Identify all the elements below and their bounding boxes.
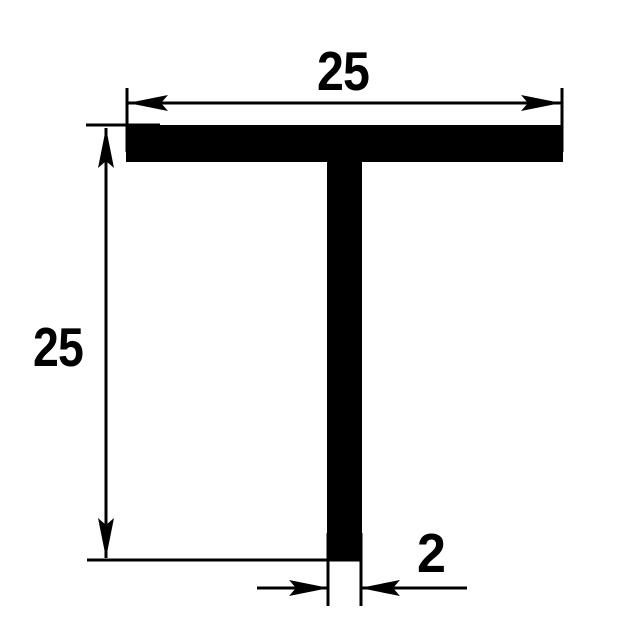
width-dimension-label: 25 xyxy=(317,40,369,102)
height-dimension-label: 25 xyxy=(33,316,83,378)
t-profile-shape xyxy=(126,125,563,561)
thickness-dimension-label: 2 xyxy=(417,522,445,584)
height-dimension: 25 xyxy=(33,125,362,560)
thickness-dimension: 2 xyxy=(257,522,467,606)
stem-shape xyxy=(327,160,362,561)
flange-shape xyxy=(126,125,563,162)
drawing-canvas: 25 25 2 xyxy=(0,0,639,639)
t-profile-drawing: 25 25 2 xyxy=(0,0,639,639)
